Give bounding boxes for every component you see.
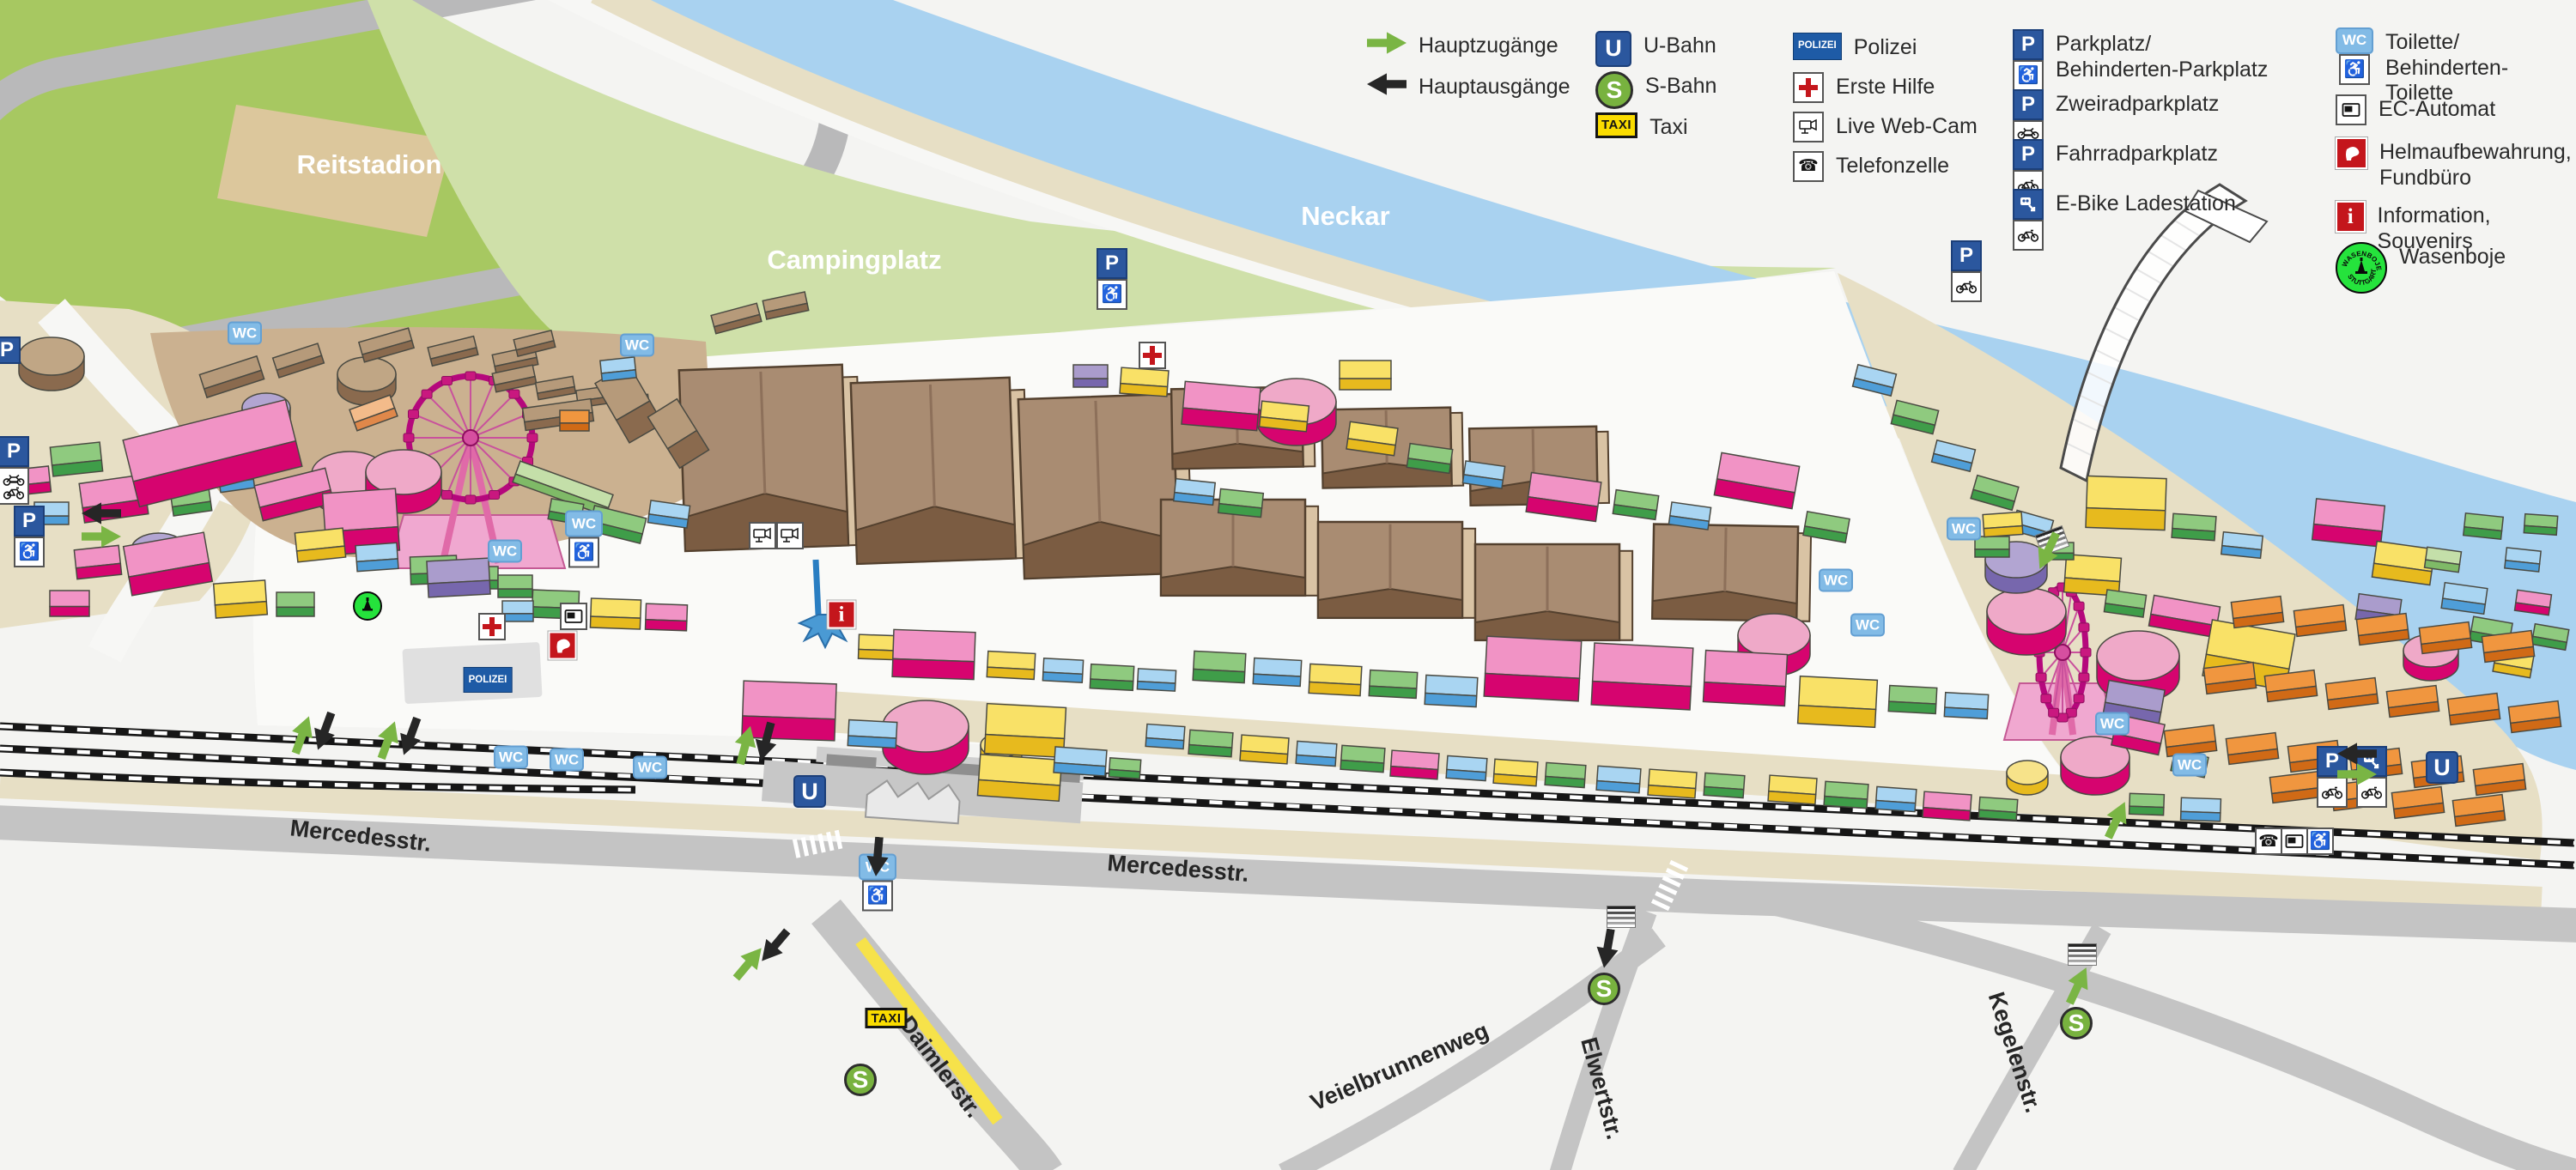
parking-icon: P [2013, 29, 2044, 60]
information-icon: i [2336, 201, 2366, 233]
wc-badge: WC [1947, 518, 1981, 541]
icon-stack [2013, 189, 2044, 251]
wheelchair-icon: ♿ [1097, 279, 1127, 310]
exit-arrow-icon [1592, 927, 1623, 970]
label-daimlerstr: Daimlerstr. [894, 1011, 987, 1123]
wc-badge: WC [2172, 754, 2207, 777]
telephone-icon: ☎ [1793, 151, 1824, 182]
parking-icon: P [1951, 240, 1982, 271]
legend-label: U-Bahn [1643, 31, 1716, 59]
legend-label: Live Web-Cam [1836, 112, 1978, 140]
accessible-parking-badge: P♿ [1097, 248, 1127, 310]
taxi-badge: TAXI [865, 1008, 907, 1028]
icon-label-overlay: Reitstadion Campingplatz Neckar Mercedes… [0, 0, 2576, 1170]
legend-item-taxi: TAXITaxi [1595, 112, 1688, 141]
exit-arrow-icon [1367, 72, 1406, 96]
wc-badge: WC [1819, 569, 1853, 592]
stairs-badge [2068, 943, 2097, 966]
legend-label: Parkplatz/ Behinderten-Parkplatz [2056, 29, 2268, 82]
first-aid-badge [1139, 342, 1166, 369]
label-mercedesstr-east: Mercedesstr. [1106, 850, 1249, 888]
webcam-badge [776, 522, 804, 549]
legend-label: Zweiradparkplatz [2056, 89, 2219, 118]
legend-item-polizei: POLIZEIPolizei [1793, 33, 1917, 61]
entrance-arrow-icon [82, 524, 121, 549]
wc-badge: WC [488, 540, 522, 563]
u-bahn-badge: U [793, 775, 826, 808]
wasen-festival-map: Reitstadion Campingplatz Neckar Mercedes… [0, 0, 2576, 1170]
atm-icon [2336, 94, 2366, 125]
wc-badge: WC [620, 334, 654, 357]
bicycle-icon [2317, 777, 2348, 808]
u-bahn-icon: U [1595, 31, 1631, 67]
s-bahn-icon: S [1595, 71, 1633, 109]
accessible-parking-badge: P♿ [14, 506, 45, 567]
legend-item-arrow-black: Hauptausgänge [1367, 72, 1571, 100]
atm-badge [2281, 827, 2308, 855]
wheelchair-icon: ♿ [568, 537, 599, 568]
webcam-badge [749, 522, 776, 549]
wheelchair-icon: ♿ [862, 881, 893, 912]
legend-label: E-Bike Ladestation [2056, 189, 2236, 217]
legend-label: Hauptzugänge [1419, 31, 1558, 59]
legend-item-helm: Helmaufbewahrung, Fundbüro [2336, 137, 2572, 191]
webcam-icon [1793, 112, 1824, 142]
legend-item-erste-hilfe: Erste Hilfe [1793, 72, 1935, 103]
wc-icon: WC [2336, 27, 2373, 54]
police-badge: POLIZEI [464, 667, 513, 693]
bicycle-icon [2013, 220, 2044, 251]
wc-icon: WC [565, 511, 603, 537]
entrance-arrow-icon [2059, 962, 2098, 1009]
wheelchair-badge: ♿ [2306, 827, 2334, 855]
entrance-arrow-icon [2098, 797, 2136, 843]
exit-arrow-icon [82, 501, 121, 525]
legend-item-ebike: E-Bike Ladestation [2013, 189, 2236, 251]
parking-icon: P [0, 436, 29, 467]
wc-badge: WC [1850, 614, 1885, 637]
entrance-arrow-icon [726, 940, 770, 985]
telephone-badge: ☎ [2255, 827, 2282, 855]
legend-label: Taxi [1649, 112, 1687, 141]
legend-label: EC-Automat [2379, 94, 2495, 123]
parking-badge: P [0, 336, 21, 364]
entrance-arrow-icon [284, 712, 320, 758]
atm-badge [560, 603, 587, 630]
legend-label: S-Bahn [1645, 71, 1716, 100]
legend-label: Polizei [1854, 33, 1917, 61]
legend-label: Hauptausgänge [1419, 72, 1571, 100]
label-campingplatz: Campingplatz [767, 245, 941, 276]
entrance-arrow-icon [1367, 31, 1406, 55]
parking-icon: P [2013, 139, 2044, 170]
legend-label: Fahrradparkplatz [2056, 139, 2218, 167]
s-bahn-badge: S [844, 1064, 877, 1096]
legend-item-parkplatz-behinderten: P♿Parkplatz/ Behinderten-Parkplatz [2013, 29, 2268, 91]
legend-item-ec-automat: EC-Automat [2336, 94, 2495, 125]
label-kegelenstr: Kegelenstr. [1983, 989, 2046, 1116]
bicycle-icon [1951, 271, 1982, 302]
wc-badge: WC [550, 749, 584, 772]
taxi-icon: TAXI [1595, 112, 1637, 138]
wasenboje-badge [353, 591, 382, 621]
label-elwertstr: Elwertstr. [1575, 1034, 1627, 1142]
entrance-arrow-icon [370, 718, 406, 763]
legend-label: Wasenboje [2399, 242, 2506, 270]
two-wheeler-icon [0, 467, 29, 505]
first-aid-badge [478, 613, 506, 640]
wheelchair-icon: ♿ [14, 537, 45, 567]
parking-icon: P [1097, 248, 1127, 279]
legend-item-wasenboje: WASENBOJESTUTTGARTWasenboje [2336, 242, 2506, 294]
legend-item-u-bahn: UU-Bahn [1595, 31, 1716, 67]
police-icon: POLIZEI [1793, 33, 1842, 60]
exit-arrow-icon [307, 709, 343, 755]
label-mercedesstr-west: Mercedesstr. [289, 815, 433, 857]
wc-badge: WC [494, 746, 528, 769]
bicycle-parking-badge: P [1951, 240, 1982, 302]
label-neckar: Neckar [1301, 201, 1389, 232]
legend-item-telefonzelle: ☎Telefonzelle [1793, 151, 1949, 182]
label-reitstadion: Reitstadion [297, 149, 442, 180]
legend-label: Erste Hilfe [1836, 72, 1935, 100]
legend-item-s-bahn: SS-Bahn [1595, 71, 1716, 109]
wasenboje-icon: WASENBOJESTUTTGART [2336, 242, 2387, 294]
s-bahn-badge: S [1588, 973, 1620, 1005]
legend-label: Telefonzelle [1836, 151, 1949, 179]
helmet-storage-icon [2336, 137, 2367, 169]
information-badge: i [828, 601, 856, 629]
first-aid-icon [1793, 72, 1824, 103]
wheelchair-icon: ♿ [2013, 60, 2044, 91]
legend-item-webcam: Live Web-Cam [1793, 112, 1978, 142]
u-bahn-badge: U [2426, 751, 2458, 784]
exit-arrow-icon [752, 923, 796, 968]
s-bahn-badge: S [2060, 1007, 2093, 1040]
label-veielbrunnenweg: Veielbrunnenweg [1307, 1017, 1493, 1116]
stairs-badge [1607, 906, 1636, 928]
exit-arrow-icon [392, 714, 428, 760]
ebike-charging-icon [2013, 189, 2044, 220]
wheelchair-icon: ♿ [2339, 54, 2370, 85]
icon-stack: P♿ [2013, 29, 2044, 91]
legend-label: Helmaufbewahrung, Fundbüro [2379, 137, 2572, 191]
legend-item-arrow-green: Hauptzugänge [1367, 31, 1558, 59]
two-wheeler-parking-badge: P [0, 436, 29, 505]
wc-accessible-badge: WC♿ [565, 511, 603, 568]
icon-stack: WC♿ [2336, 27, 2373, 85]
wc-badge: WC [633, 756, 667, 779]
wc-badge: WC [2095, 712, 2129, 736]
wc-badge: WC [228, 322, 262, 345]
parking-icon: P [2013, 89, 2044, 120]
helmet-storage-badge [549, 632, 577, 660]
parking-icon: P [14, 506, 45, 537]
